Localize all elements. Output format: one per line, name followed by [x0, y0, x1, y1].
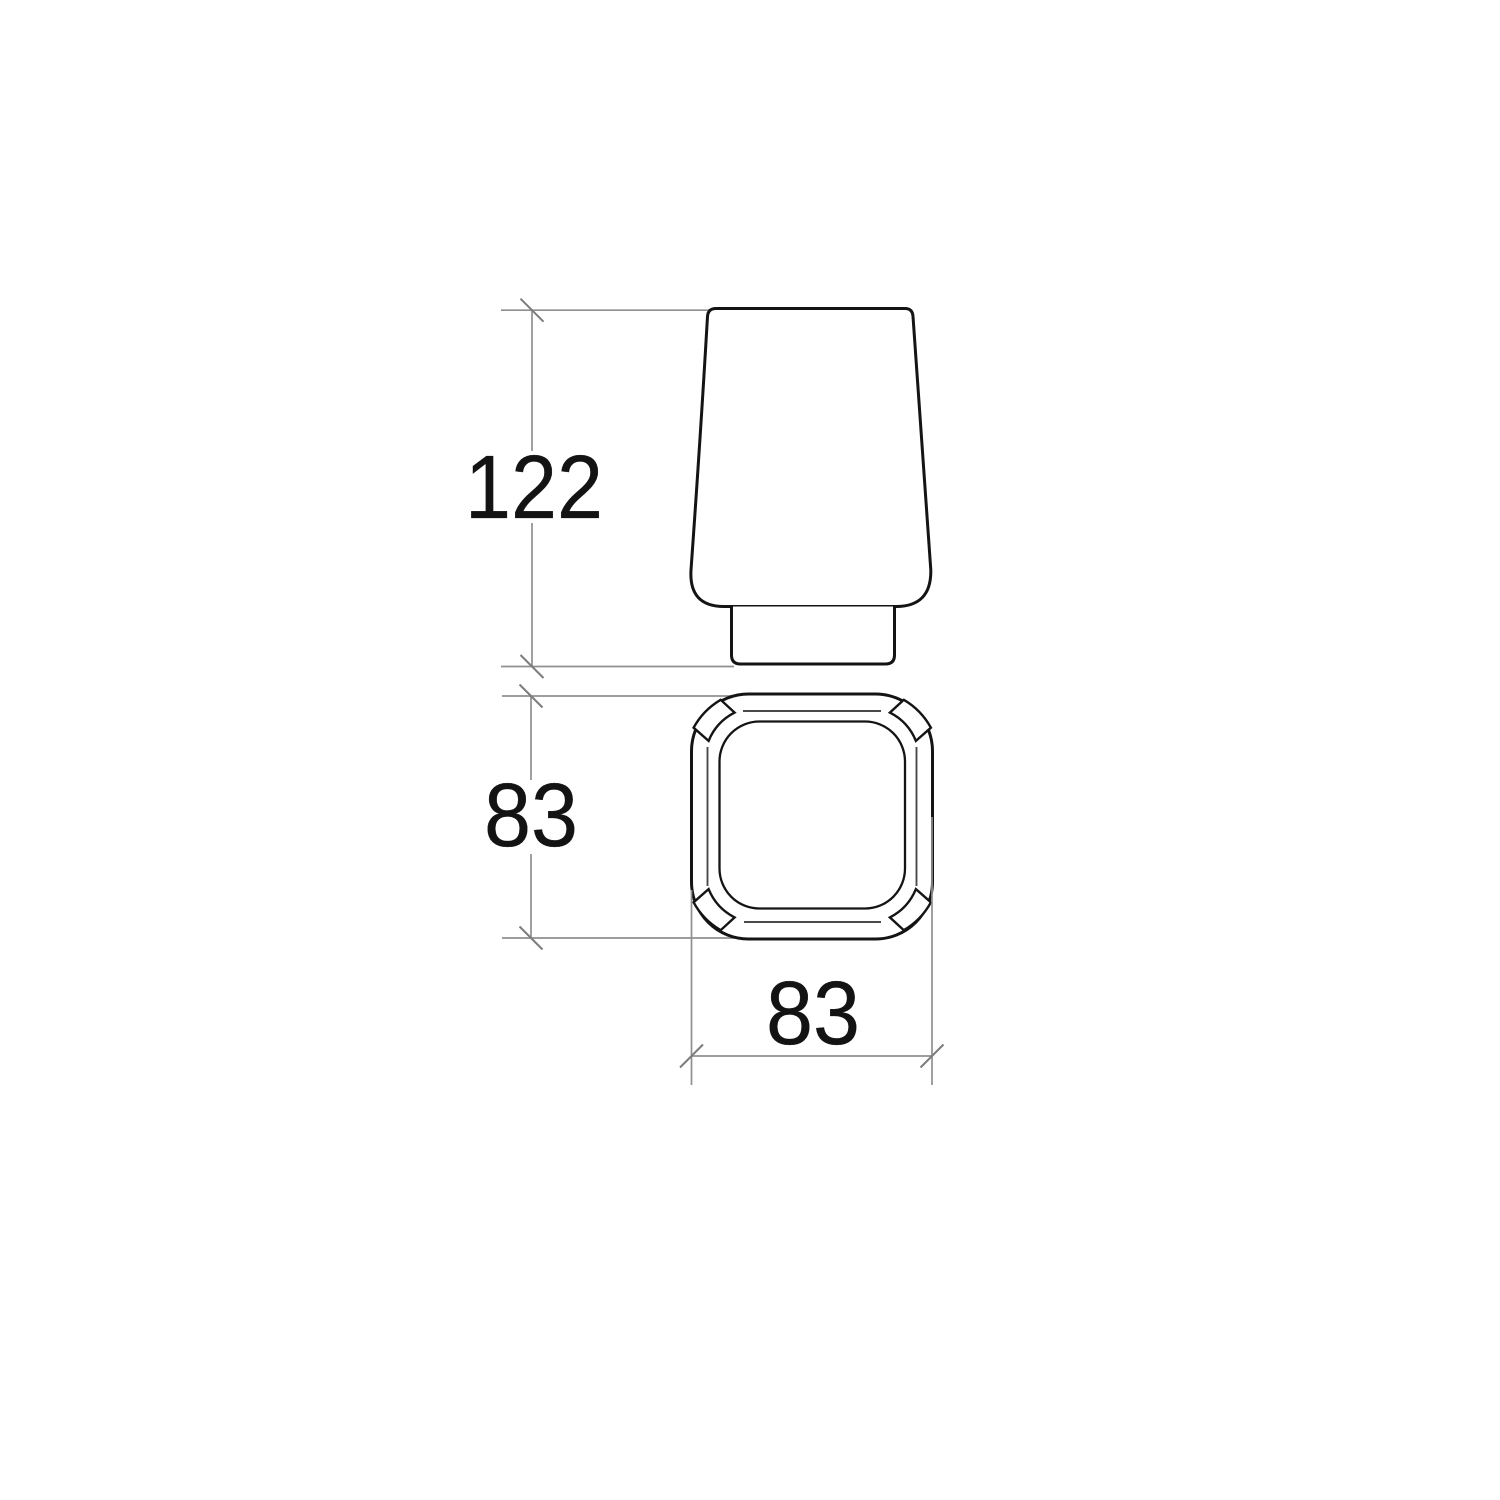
svg-text:122: 122 [465, 438, 603, 538]
svg-text:83: 83 [766, 964, 860, 1064]
svg-text:83: 83 [484, 766, 578, 866]
